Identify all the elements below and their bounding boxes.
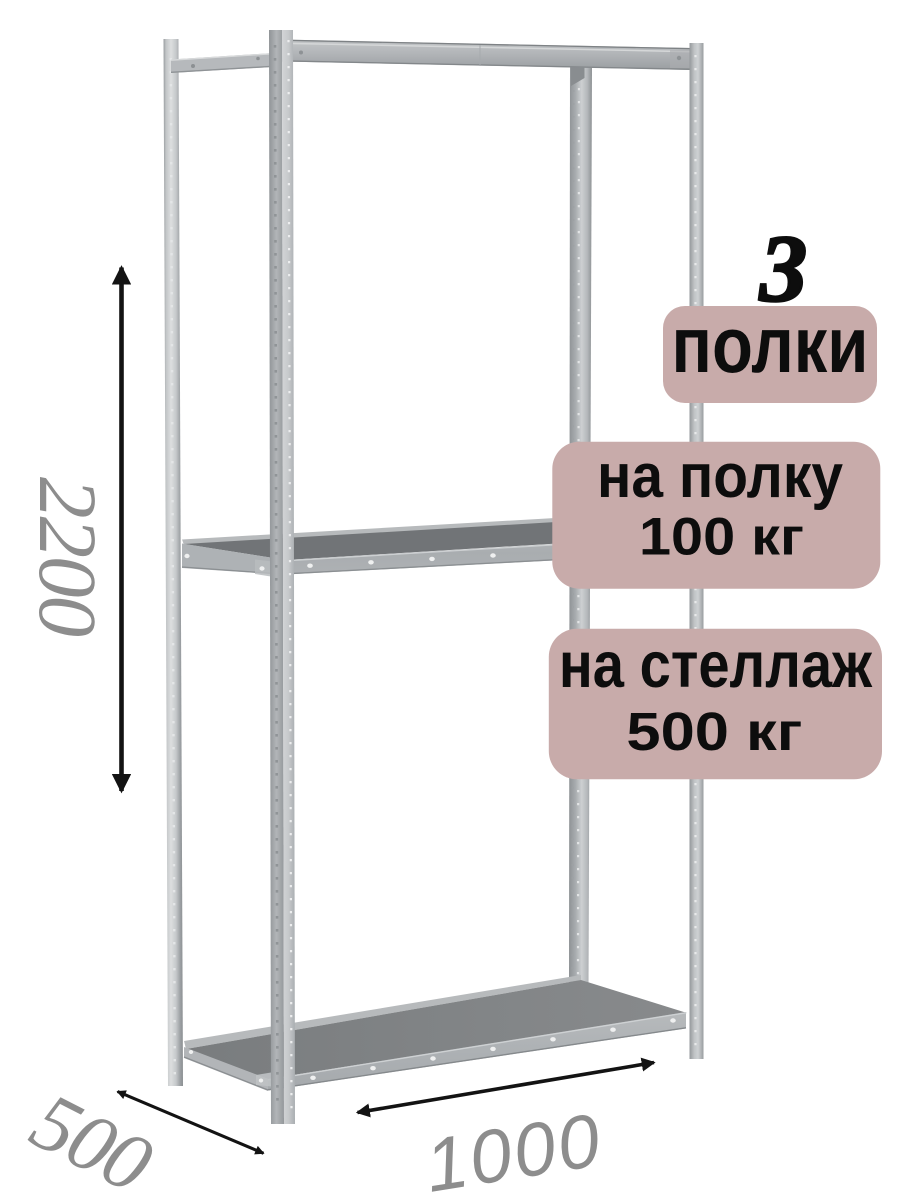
- svg-text:500 кг: 500 кг: [626, 703, 802, 762]
- svg-text:на стеллаж: на стеллаж: [559, 628, 873, 701]
- svg-text:2200: 2200: [22, 477, 114, 637]
- svg-text:на полку: на полку: [597, 442, 843, 511]
- svg-text:100 кг: 100 кг: [639, 508, 804, 567]
- svg-text:полки: полки: [672, 300, 869, 389]
